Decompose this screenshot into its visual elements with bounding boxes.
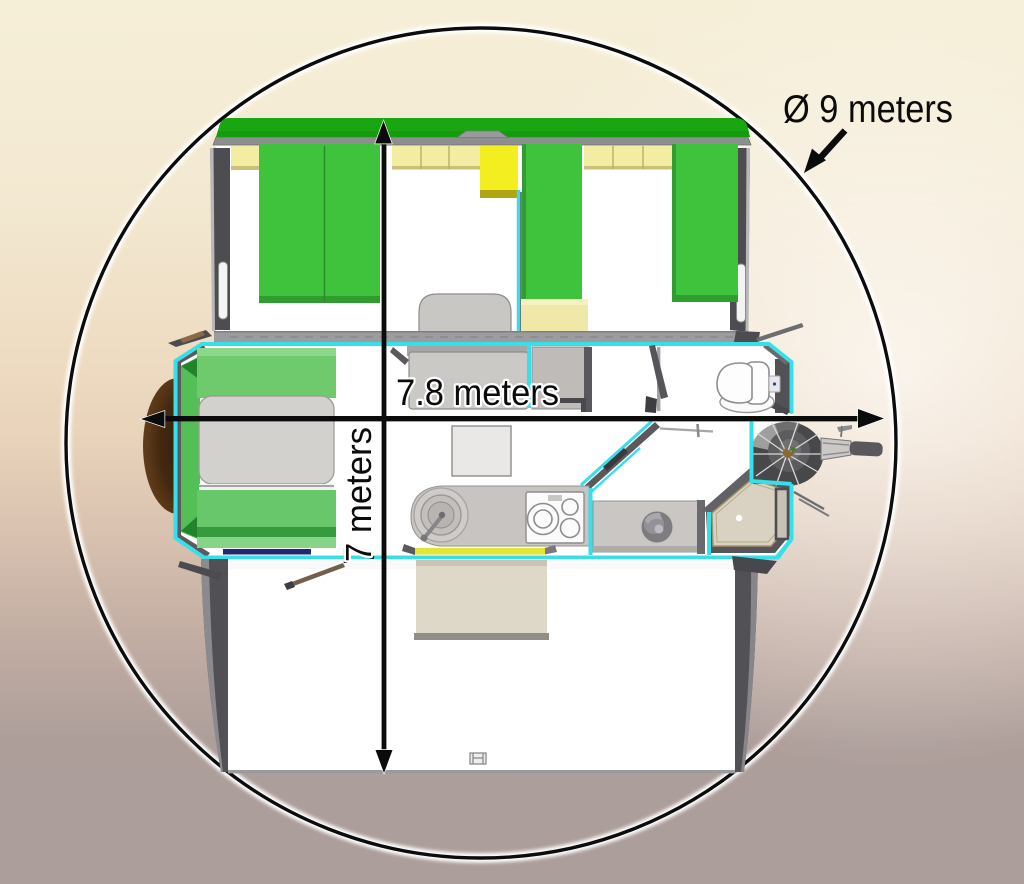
svg-text:Ø 9 meters: Ø 9 meters [783,88,953,131]
svg-text:7 meters: 7 meters [338,427,379,562]
svg-text:7.8 meters: 7.8 meters [396,372,559,413]
